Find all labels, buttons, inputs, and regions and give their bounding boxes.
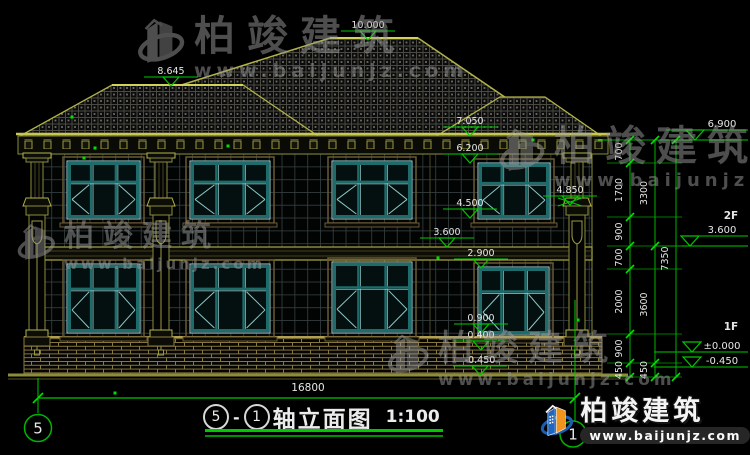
svg-text:±0.000: ±0.000	[703, 341, 740, 352]
svg-text:4.500: 4.500	[456, 198, 483, 209]
title-axis-start-bubble: 5	[203, 404, 229, 430]
svg-text:7350: 7350	[660, 246, 671, 270]
svg-text:0.900: 0.900	[467, 313, 494, 324]
svg-text:1700: 1700	[614, 178, 625, 202]
svg-text:8.645: 8.645	[157, 66, 184, 77]
svg-text:16800: 16800	[291, 382, 324, 394]
brand-logo-url: www.baijunjz.com	[580, 427, 750, 444]
svg-text:450: 450	[614, 361, 625, 379]
cad-viewport: 10.0008.6457.0506.2004.8504.5003.6002.90…	[0, 0, 750, 455]
svg-text:3.600: 3.600	[708, 225, 737, 236]
title-axis-end-bubble: 1	[244, 404, 270, 430]
brand-logo-icon	[540, 390, 576, 452]
svg-text:3600: 3600	[639, 292, 650, 316]
svg-text:1F: 1F	[724, 321, 738, 333]
window	[183, 157, 277, 227]
floor-band	[35, 247, 592, 260]
brand-logo-text: 柏竣建筑	[580, 398, 704, 426]
svg-text:3.600: 3.600	[433, 227, 460, 238]
title-scale: 1:100	[386, 407, 440, 427]
window	[325, 157, 419, 227]
svg-text:900: 900	[614, 339, 625, 357]
svg-text:450: 450	[639, 361, 650, 379]
svg-text:10.000: 10.000	[351, 20, 384, 31]
window	[60, 157, 147, 227]
axis-bubble-left: 5	[25, 415, 52, 442]
svg-text:2.900: 2.900	[467, 248, 494, 259]
svg-text:0.400: 0.400	[467, 330, 494, 341]
svg-text:4.850: 4.850	[556, 185, 583, 196]
title-underline	[205, 429, 443, 432]
roof-group	[20, 38, 607, 140]
title-underline-2	[205, 435, 443, 437]
svg-text:700: 700	[614, 142, 625, 160]
window	[471, 159, 557, 227]
window	[60, 260, 147, 341]
window	[325, 258, 419, 341]
svg-text:2F: 2F	[724, 210, 738, 222]
svg-text:700: 700	[614, 248, 625, 266]
svg-text:900: 900	[614, 222, 625, 240]
svg-text:6.900: 6.900	[708, 119, 737, 130]
svg-text:-0.450: -0.450	[465, 355, 496, 366]
window	[183, 260, 277, 341]
svg-text:2000: 2000	[614, 289, 625, 313]
svg-text:6.200: 6.200	[456, 143, 483, 154]
svg-text:5: 5	[33, 420, 43, 438]
brand-logo: 柏竣建筑 www.baijunjz.com	[540, 387, 750, 455]
svg-text:7.050: 7.050	[456, 116, 483, 127]
svg-text:-0.450: -0.450	[706, 356, 738, 367]
cornice-band	[16, 134, 610, 154]
title-separator: -	[233, 408, 240, 427]
svg-text:3300: 3300	[639, 181, 650, 205]
